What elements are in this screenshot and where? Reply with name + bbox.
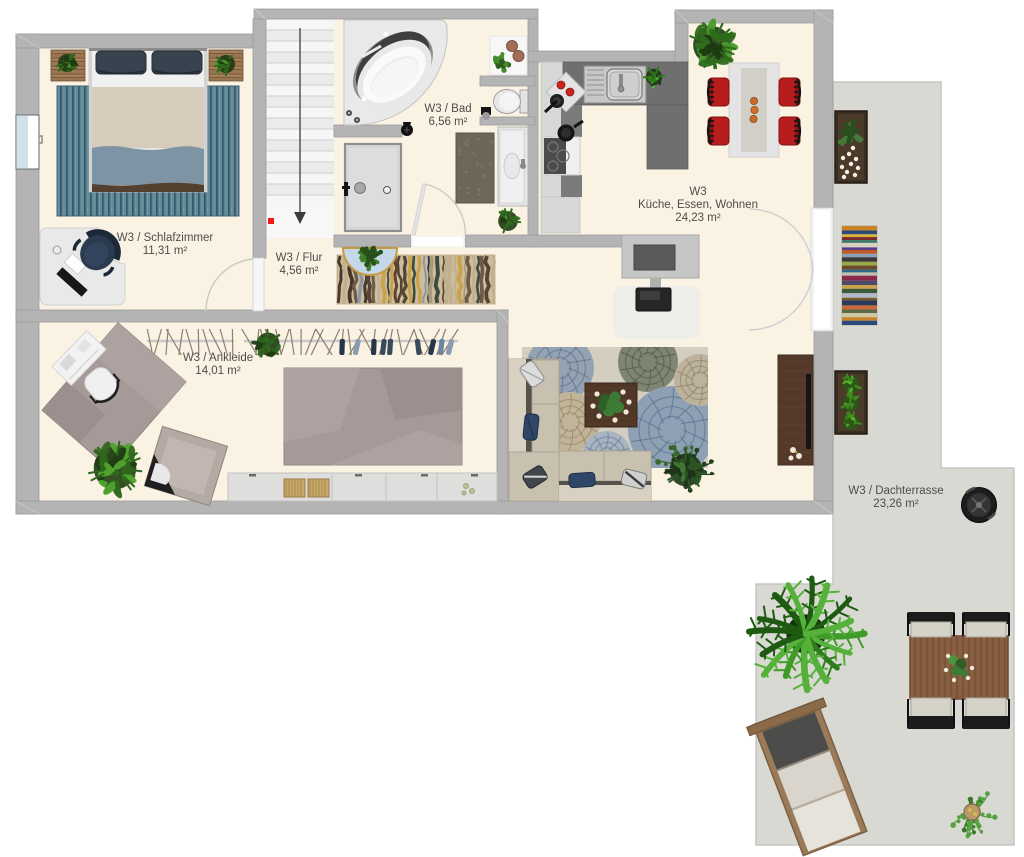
svg-text:W3 / Bad: W3 / Bad [424, 103, 471, 115]
svg-text:W3: W3 [689, 186, 706, 198]
svg-text:24,23 m²: 24,23 m² [675, 212, 721, 224]
svg-text:4,56 m²: 4,56 m² [280, 265, 319, 277]
svg-text:6,56 m²: 6,56 m² [429, 116, 468, 128]
svg-text:W3 / Schlafzimmer: W3 / Schlafzimmer [117, 232, 214, 244]
svg-text:14,01 m²: 14,01 m² [195, 365, 241, 377]
svg-text:11,31 m²: 11,31 m² [143, 245, 188, 257]
svg-text:W3 / Dachterrasse: W3 / Dachterrasse [848, 485, 943, 497]
svg-text:W3 / Flur: W3 / Flur [276, 252, 323, 264]
svg-text:23,26 m²: 23,26 m² [873, 498, 919, 510]
svg-text:W3 / Ankleide: W3 / Ankleide [183, 352, 253, 364]
svg-text:Küche, Essen, Wohnen: Küche, Essen, Wohnen [638, 199, 758, 211]
